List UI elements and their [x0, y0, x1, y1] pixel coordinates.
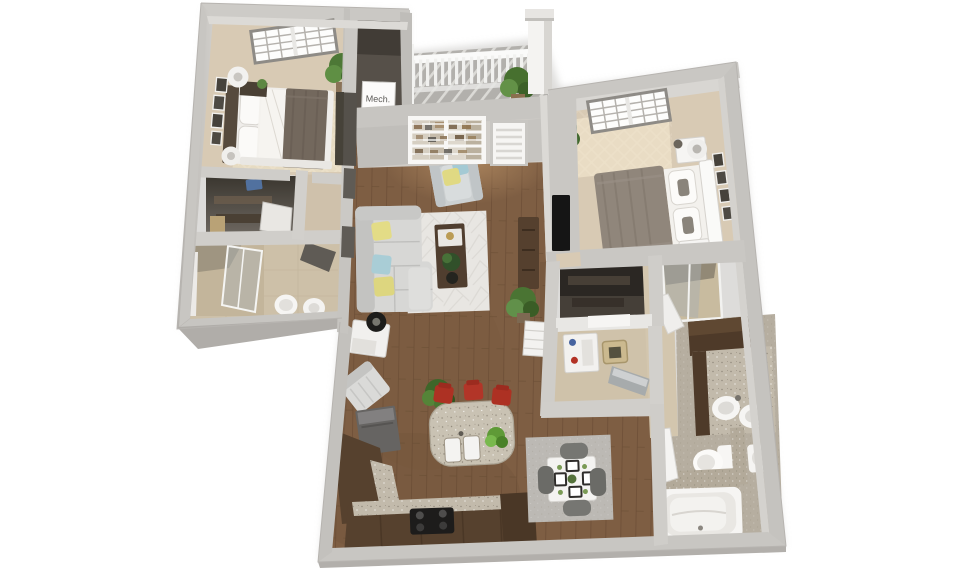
svg-text:Mech.: Mech.	[366, 94, 391, 105]
